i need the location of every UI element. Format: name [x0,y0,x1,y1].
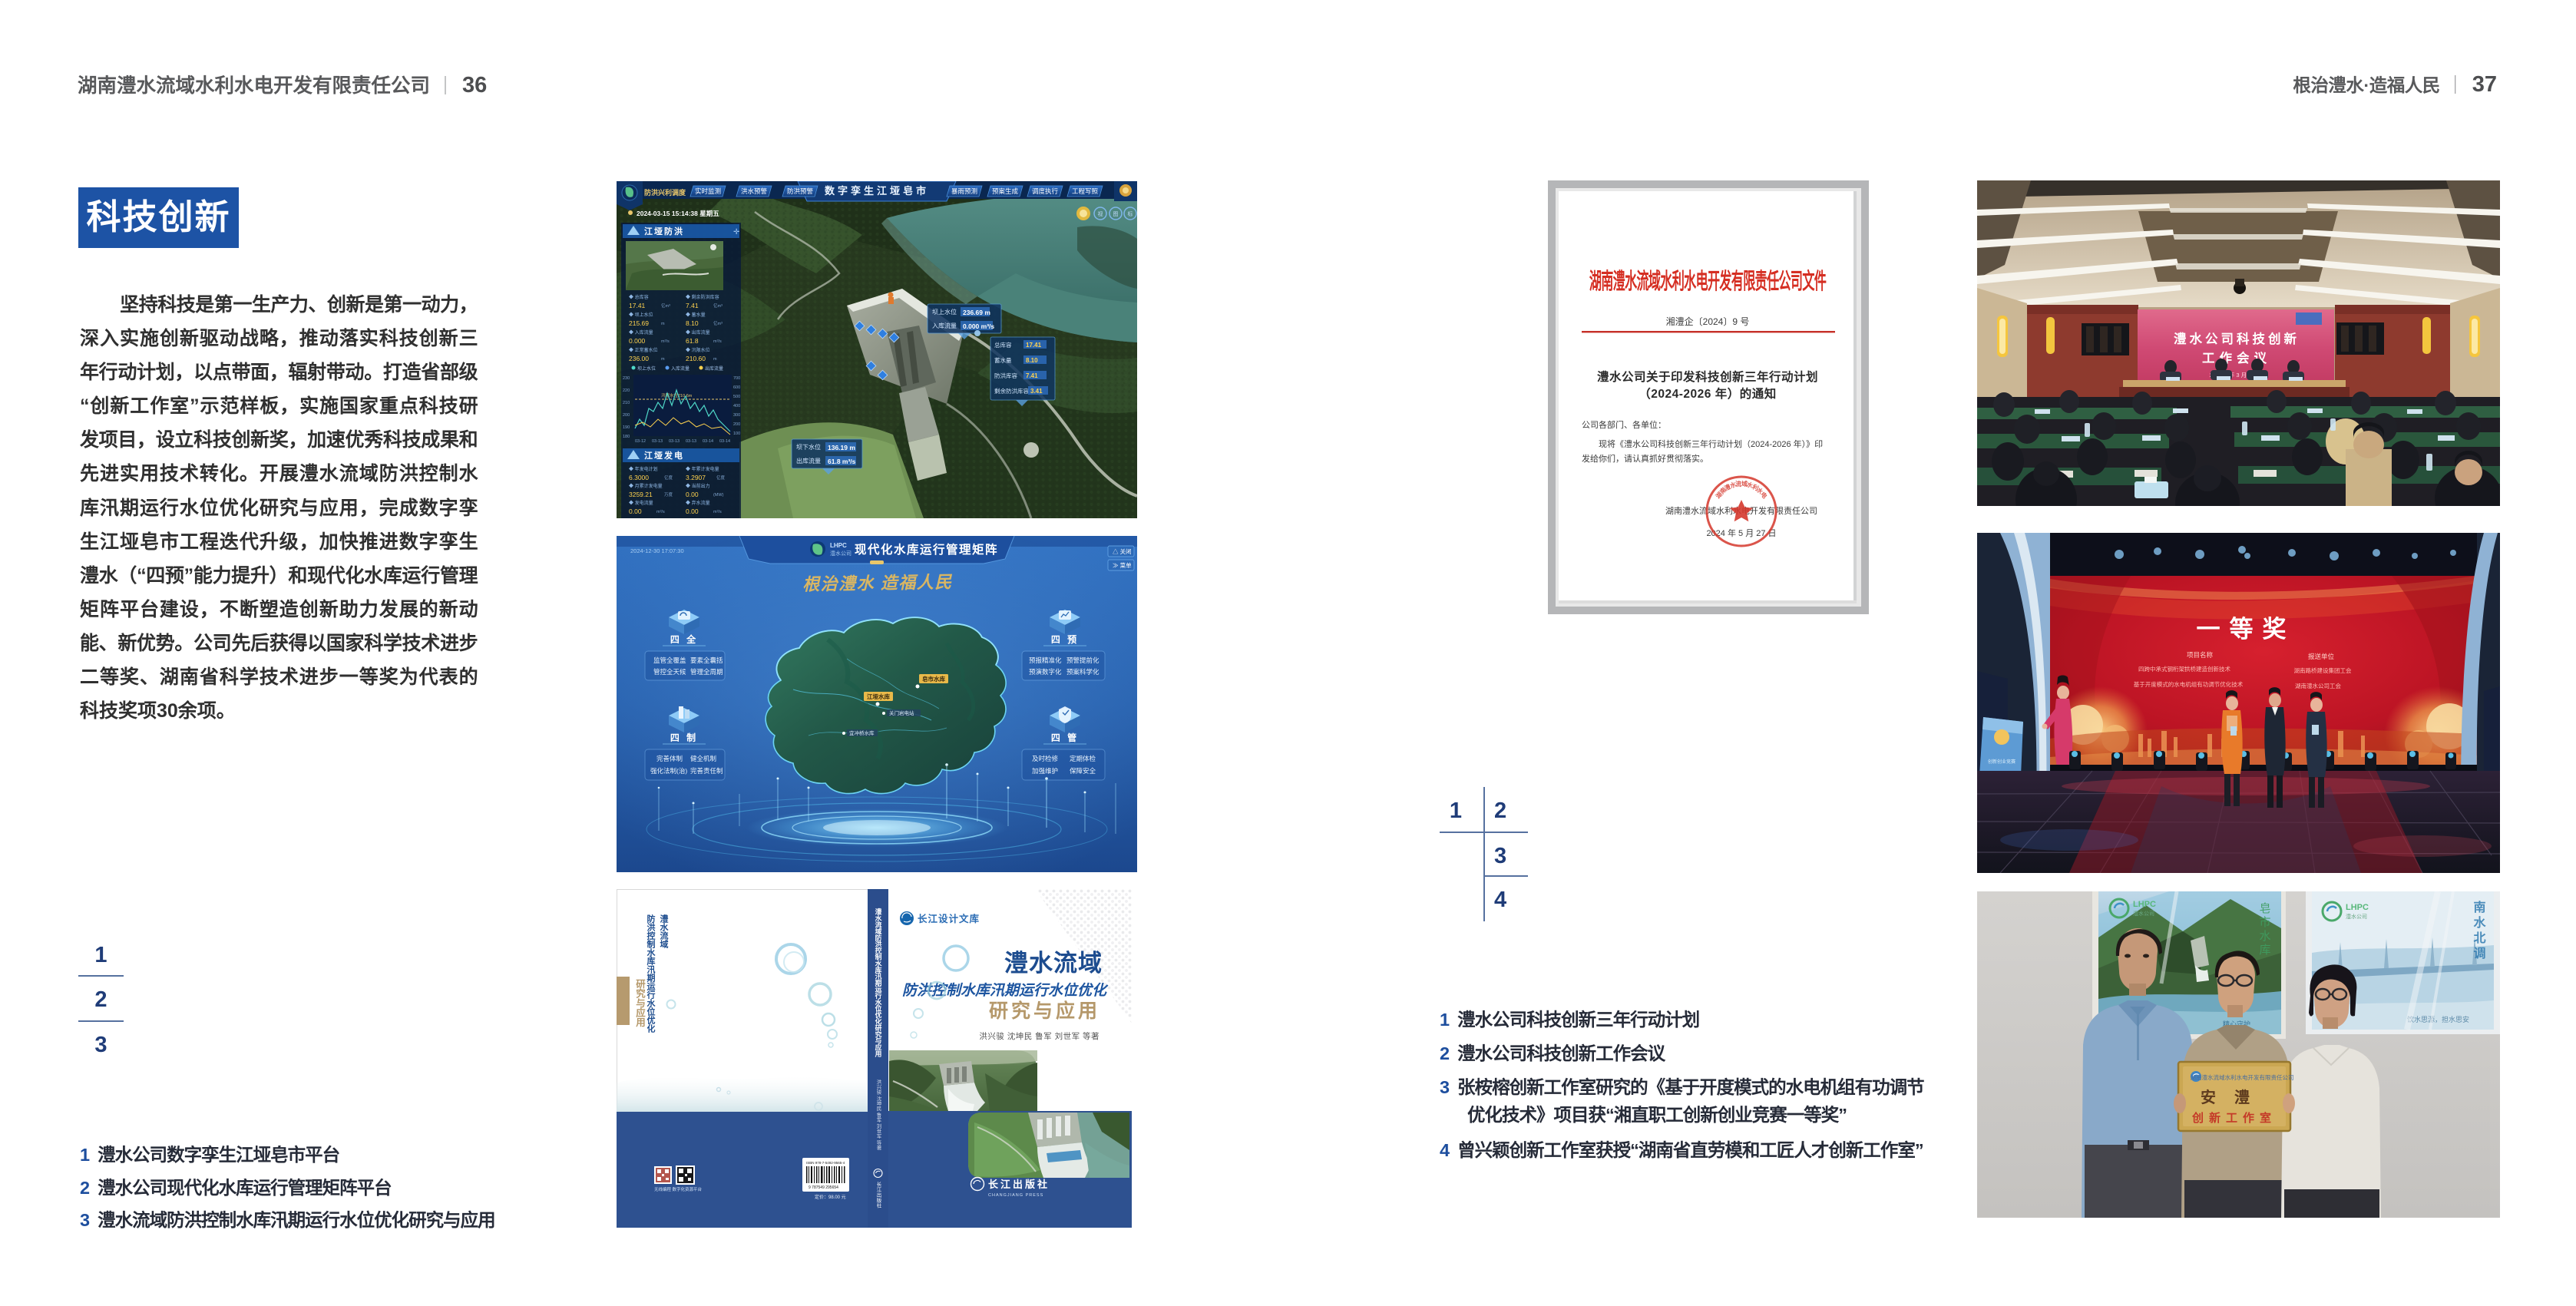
svg-text:(MW): (MW) [713,493,724,498]
svg-text:一等奖: 一等奖 [2197,616,2296,643]
svg-text:创新创业竞赛: 创新创业竞赛 [1988,759,2015,765]
svg-text:万度: 万度 [664,491,673,498]
svg-text:关门岩电站: 关门岩电站 [889,709,914,716]
svg-text:7.41: 7.41 [686,302,699,309]
svg-text:◆ 月累计发电量: ◆ 月累计发电量 [629,483,663,489]
svg-text:江垭防洪: 江垭防洪 [644,226,684,236]
svg-text:预报精准化: 预报精准化 [1029,656,1062,664]
svg-text:0.000: 0.000 [629,337,646,345]
svg-text:管理全周期: 管理全周期 [690,668,723,676]
svg-text:报送单位: 报送单位 [2308,653,2335,660]
svg-text:洪水预警: 洪水预警 [741,187,768,195]
svg-text:澧水公司: 澧水公司 [830,550,852,557]
svg-text:亿m³: 亿m³ [661,303,670,309]
svg-text:7.41: 7.41 [1026,372,1038,379]
svg-text:◆ 汛限水位: ◆ 汛限水位 [686,347,710,353]
svg-text:防洪兴利调度: 防洪兴利调度 [644,188,686,197]
svg-text:236.69 m: 236.69 m [963,309,990,316]
svg-text:澧水公司: 澧水公司 [2346,913,2367,920]
svg-text:图: 图 [1113,211,1119,217]
svg-text:LHPC: LHPC [2133,900,2156,909]
svg-text:四 全: 四 全 [670,633,698,645]
svg-text:ISBN 978-7-5492-9565-4: ISBN 978-7-5492-9565-4 [806,1161,845,1165]
svg-text:◆ 剩余防洪库容: ◆ 剩余防洪库容 [686,294,719,300]
svg-text:200: 200 [623,413,630,418]
svg-text:现代化水库运行管理矩阵: 现代化水库运行管理矩阵 [855,542,998,557]
svg-text:湖南澧水流域水利水电开发有限责任公司: 湖南澧水流域水利水电开发有限责任公司 [2191,1073,2294,1081]
svg-text:m³/s: m³/s [661,339,670,344]
svg-text:2024-03-15 15:14:38 星期五: 2024-03-15 15:14:38 星期五 [637,210,719,217]
svg-text:防洪库容: 防洪库容 [994,372,1017,379]
svg-text:现将《澧水公司科技创新三年行动计划（2024-2026 年）: 现将《澧水公司科技创新三年行动计划（2024-2026 年）》印 [1599,438,1823,449]
svg-text:皂市水库: 皂市水库 [922,675,945,683]
svg-text:230: 230 [623,376,630,381]
svg-text:210: 210 [623,401,630,405]
svg-text:61.8 m³/s: 61.8 m³/s [828,458,856,465]
svg-text:根治澧水 造福人民: 根治澧水 造福人民 [802,572,954,593]
svg-text:✛: ✛ [733,228,739,236]
svg-text:预案生成: 预案生成 [992,187,1019,195]
svg-text:◆ 年累计发电量: ◆ 年累计发电量 [686,466,719,472]
svg-text:8.10: 8.10 [1026,357,1038,364]
svg-text:剩余防洪库容: 剩余防洪库容 [994,387,1029,395]
svg-text:湖南路桥建设集团工会: 湖南路桥建设集团工会 [2294,666,2352,674]
svg-text:调度执行: 调度执行 [1032,187,1059,195]
svg-text:江垭发电: 江垭发电 [644,450,684,461]
svg-text:236.00: 236.00 [629,355,649,362]
svg-text:◆ 弃水流量: ◆ 弃水流量 [686,500,710,506]
svg-text:防洪控制水库汛期运行水位优化: 防洪控制水库汛期运行水位优化 [646,914,656,1033]
svg-text:湖南澧水公司工会: 湖南澧水公司工会 [2295,682,2341,689]
svg-text:◆ 入库流量: ◆ 入库流量 [629,329,653,336]
svg-text:200: 200 [733,422,740,427]
svg-text:定价：98.00 元: 定价：98.00 元 [815,1194,846,1200]
svg-text:加强维护: 加强维护 [1032,767,1058,775]
svg-text:总库容: 总库容 [994,341,1012,349]
svg-text:◆ 当前出力: ◆ 当前出力 [686,483,710,489]
svg-text:3259.21: 3259.21 [629,491,653,498]
svg-text:湘澧企〔2024〕9 号: 湘澧企〔2024〕9 号 [1666,316,1750,327]
svg-text:亿m³: 亿m³ [713,303,723,309]
svg-text:300: 300 [733,413,740,418]
svg-text:◆ 蓄水量: ◆ 蓄水量 [686,312,706,318]
svg-text:◆ 年发电计划: ◆ 年发电计划 [629,466,658,472]
svg-text:m³/s: m³/s [656,510,665,514]
svg-text:61.8: 61.8 [686,337,699,345]
svg-text:亿m³: 亿m³ [713,320,723,326]
svg-text:◆ 出库流量: ◆ 出库流量 [686,329,710,336]
svg-text:LHPC: LHPC [2346,903,2369,912]
svg-text:南水北调: 南水北调 [2472,900,2486,962]
svg-text:9 787549 295654: 9 787549 295654 [809,1185,838,1190]
svg-text:标: 标 [1128,210,1133,217]
svg-text:强化法制(治): 强化法制(治) [650,767,687,775]
svg-text:暴雨预测: 暴雨预测 [951,187,977,195]
svg-text:入库流量: 入库流量 [671,365,689,372]
svg-text:2024-12-30 17:07:30: 2024-12-30 17:07:30 [630,547,684,554]
svg-text:LHPC: LHPC [830,542,847,549]
svg-text:m³/s: m³/s [713,510,722,514]
svg-text:四 预: 四 预 [1051,634,1079,645]
svg-text:研究与应用: 研究与应用 [634,979,646,1027]
svg-text:500: 500 [733,395,740,399]
svg-text:澧水流域: 澧水流域 [1004,950,1103,977]
svg-text:安澧: 安澧 [2201,1088,2268,1106]
svg-text:03-12: 03-12 [635,439,646,444]
svg-text:完善体制: 完善体制 [656,755,683,762]
svg-text:03-13: 03-13 [669,439,680,444]
svg-text:监管全覆盖: 监管全覆盖 [653,656,686,664]
svg-text:视: 视 [1098,210,1103,217]
svg-text:工程写照: 工程写照 [1072,187,1099,195]
svg-text:长江出版社: 长江出版社 [988,1179,1050,1190]
svg-text:坝上水位: 坝上水位 [637,365,656,372]
svg-text:m³/s: m³/s [713,339,722,344]
svg-text:保障安全: 保障安全 [1070,767,1096,775]
svg-text:3.41: 3.41 [1030,388,1043,395]
svg-text:研究与应用: 研究与应用 [989,1000,1100,1022]
svg-text:澧水流域防洪控制水库汛期运行水位优化研究与应用: 澧水流域防洪控制水库汛期运行水位优化研究与应用 [875,908,882,1058]
svg-text:实时监测: 实时监测 [695,187,721,195]
svg-text:江垭水库: 江垭水库 [867,693,890,700]
svg-text:亿度: 亿度 [664,474,673,481]
svg-text:四跨中承式钢桁架拱桥建造创新技术: 四跨中承式钢桁架拱桥建造创新技术 [2138,665,2230,673]
svg-text:0.000 m³/s: 0.000 m³/s [963,322,994,330]
svg-text:≫ 菜单: ≫ 菜单 [1113,561,1132,569]
svg-text:CHANGJIANG PRESS: CHANGJIANG PRESS [988,1193,1043,1198]
svg-text:公司各部门、各单位：: 公司各部门、各单位： [1582,419,1666,430]
svg-text:0.00: 0.00 [686,491,699,498]
svg-text:17.41: 17.41 [1026,342,1042,349]
svg-text:防洪控制水库汛期运行水位优化: 防洪控制水库汛期运行水位优化 [902,982,1109,999]
svg-text:03-14: 03-14 [703,439,713,444]
svg-text:饮水思源，担水思安: 饮水思源，担水思安 [2407,1015,2469,1023]
svg-text:宜冲桥水库: 宜冲桥水库 [849,729,875,736]
svg-text:400: 400 [733,404,740,408]
svg-text:健全机制: 健全机制 [690,755,716,762]
svg-text:澧水流域: 澧水流域 [659,914,669,949]
svg-text:澧水公司关于印发科技创新三年行动计划: 澧水公司关于印发科技创新三年行动计划 [1597,369,1818,384]
svg-text:四 管: 四 管 [1051,732,1079,743]
svg-text:四 制: 四 制 [670,732,698,743]
svg-text:m: m [713,357,717,362]
svg-text:发给你们，请认真抓好贯彻落实。: 发给你们，请认真抓好贯彻落实。 [1582,453,1708,464]
svg-text:100: 100 [733,431,740,436]
svg-text:长江设计文库: 长江设计文库 [918,913,980,924]
svg-text:基于开度模式的水电机组有功调节优化技术: 基于开度模式的水电机组有功调节优化技术 [2134,680,2244,688]
svg-text:出库流量: 出库流量 [796,457,821,465]
svg-text:及时检修: 及时检修 [1032,755,1059,762]
svg-text:220: 220 [623,388,630,393]
svg-text:0.00: 0.00 [629,508,642,515]
svg-text:◆ 总库容: ◆ 总库容 [629,294,649,300]
svg-text:坝上水位: 坝上水位 [932,308,957,316]
svg-text:m: m [661,357,665,362]
svg-text:澧水公司: 澧水公司 [2133,910,2154,917]
svg-text:要素全囊括: 要素全囊括 [690,656,723,664]
svg-text:◆ 坝上水位: ◆ 坝上水位 [629,312,653,318]
svg-text:（2024-2026 年）的通知: （2024-2026 年）的通知 [1639,386,1776,401]
svg-text:03-14: 03-14 [719,439,730,444]
svg-text:管控全天候: 管控全天候 [653,668,686,676]
svg-text:700: 700 [733,376,740,381]
svg-text:215.69: 215.69 [629,319,649,327]
svg-text:190: 190 [623,425,630,430]
svg-text:澧水公司科技创新: 澧水公司科技创新 [2174,331,2300,346]
svg-text:数字孪生江垭皂市: 数字孪生江垭皂市 [825,185,929,197]
svg-text:136.19 m: 136.19 m [828,444,855,451]
svg-text:入库流量: 入库流量 [932,322,957,329]
svg-text:180: 180 [623,435,630,439]
svg-text:无线编程 数字化资源平台: 无线编程 数字化资源平台 [654,1186,703,1192]
svg-text:皂市水库: 皂市水库 [2258,902,2271,957]
svg-text:预案科学化: 预案科学化 [1066,668,1100,676]
svg-text:0.00: 0.00 [686,508,699,515]
svg-text:蓄水量: 蓄水量 [994,356,1012,364]
svg-text:定期体检: 定期体检 [1070,755,1096,762]
svg-text:△ 关闭: △ 关闭 [1113,547,1132,555]
svg-text:亿度: 亿度 [716,474,726,481]
svg-text:预警提前化: 预警提前化 [1066,656,1100,664]
svg-text:210.60: 210.60 [686,355,706,362]
svg-text:洪兴骏 沈坤民 鲁军 刘世军 等著: 洪兴骏 沈坤民 鲁军 刘世军 等著 [979,1031,1100,1041]
svg-text:03-13: 03-13 [686,439,696,444]
svg-text:600: 600 [733,385,740,390]
svg-text:完善责任制: 完善责任制 [690,767,723,775]
svg-text:防洪预警: 防洪预警 [787,187,814,195]
svg-text:3.2907: 3.2907 [686,474,706,481]
svg-text:◆ 正常蓄水位: ◆ 正常蓄水位 [629,347,658,353]
svg-text:出库流量: 出库流量 [705,365,723,372]
svg-text:8.10: 8.10 [686,319,699,327]
svg-text:项目名称: 项目名称 [2187,651,2214,659]
svg-text:◆ 发电流量: ◆ 发电流量 [629,500,653,506]
svg-text:预演数字化: 预演数字化 [1029,668,1062,676]
svg-text:创新工作室: 创新工作室 [2191,1111,2277,1125]
svg-text:6.3000: 6.3000 [629,474,649,481]
svg-text:湖南澧水流域水利水电开发有限责任公司文件: 湖南澧水流域水利水电开发有限责任公司文件 [1589,268,1827,293]
svg-text:03-13: 03-13 [652,439,663,444]
svg-text:坝下水位: 坝下水位 [796,443,821,451]
svg-text:17.41: 17.41 [629,302,646,309]
svg-text:m: m [661,322,665,326]
